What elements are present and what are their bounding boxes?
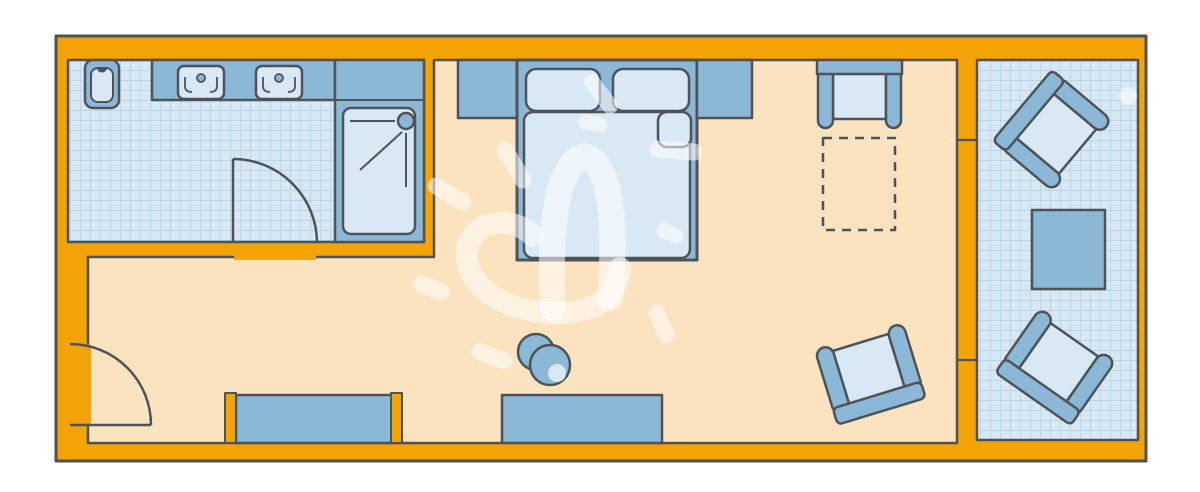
sink-right [256, 66, 302, 99]
pillow-right [613, 69, 689, 111]
toilet [85, 60, 119, 108]
bathroom [68, 60, 424, 242]
sink-left [178, 66, 224, 99]
vanity-counter [152, 60, 335, 100]
wardrobe [236, 395, 392, 443]
wall-jamb-right [391, 393, 402, 443]
balcony-table [1032, 210, 1105, 289]
shower-head [398, 113, 414, 129]
desk [502, 395, 662, 443]
luggage-bench [817, 60, 902, 128]
wardrobe-niche [225, 393, 402, 443]
entrance-opening [85, 345, 91, 424]
nightstand-left [458, 60, 517, 118]
shower [335, 60, 424, 242]
watermark-dot [1119, 87, 1137, 105]
floor-plan-canvas [0, 0, 1200, 492]
wall-jamb-left [225, 393, 236, 443]
floor-plan-page [0, 0, 1200, 492]
nightstand-right [697, 60, 752, 118]
bathroom-door-opening [234, 254, 316, 260]
